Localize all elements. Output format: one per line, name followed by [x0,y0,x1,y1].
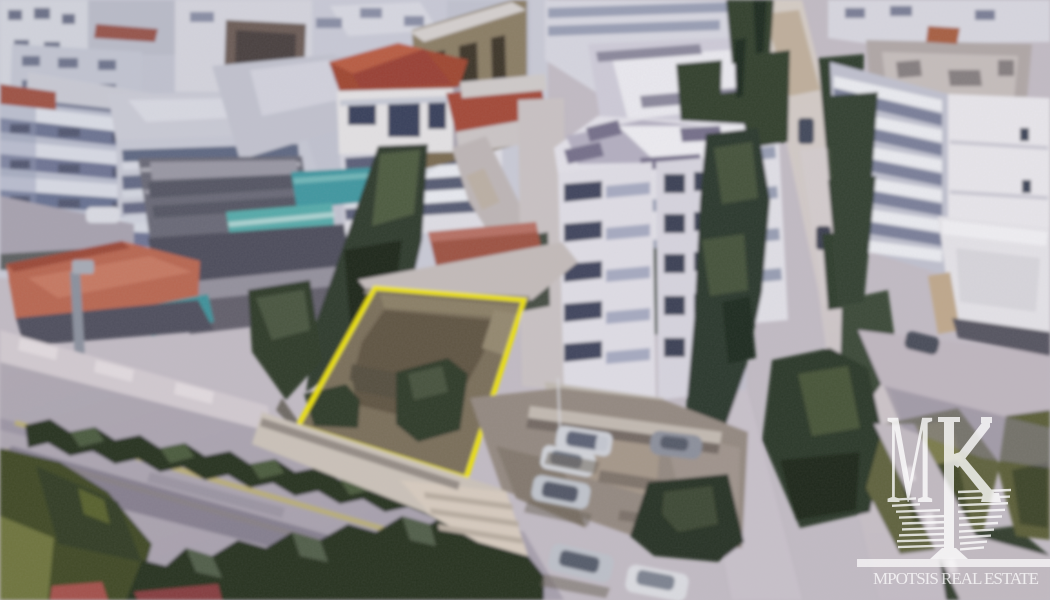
svg-text:MPOTSIS REAL ESTATE: MPOTSIS REAL ESTATE [873,569,1039,588]
svg-text:M: M [886,388,934,530]
